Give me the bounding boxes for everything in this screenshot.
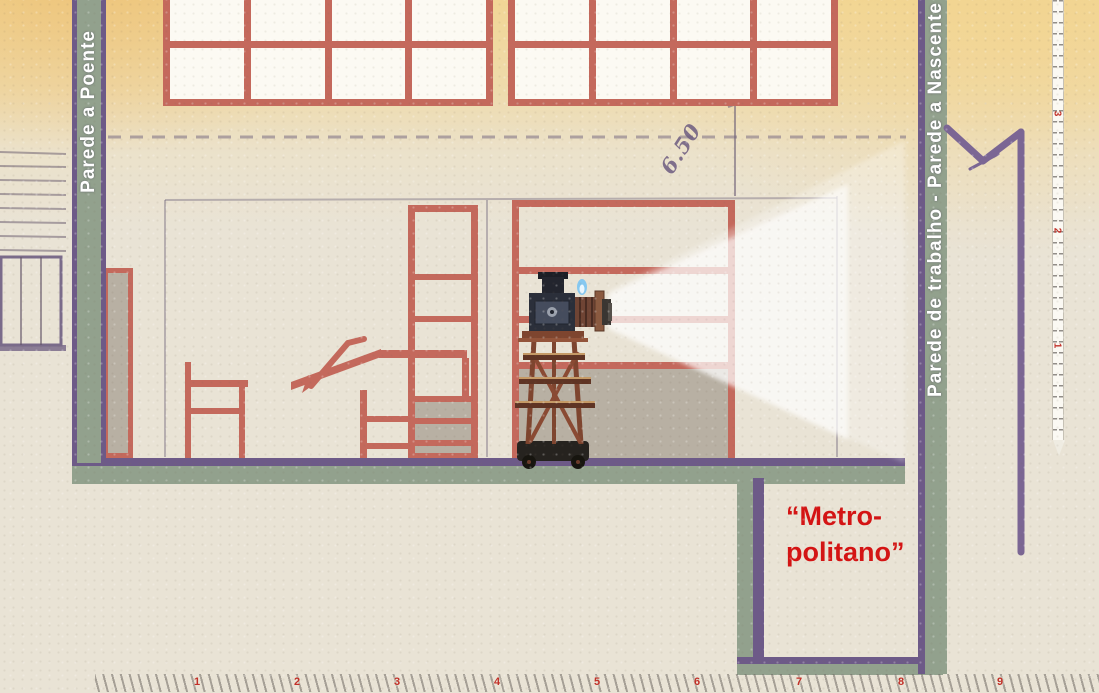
- ruler-number: 9: [997, 676, 1003, 688]
- metropolitano-line2: politano”: [786, 534, 956, 570]
- ruler-number: 1: [1051, 343, 1062, 349]
- drafting-table-top: [291, 349, 467, 393]
- ruler-number: 2: [1051, 228, 1062, 234]
- chimney: [542, 277, 564, 295]
- ruler-ticks: [1059, 0, 1063, 440]
- projector-platform: [522, 331, 584, 338]
- ruler-number: 7: [796, 676, 802, 688]
- bellows-and-lens: [575, 291, 612, 331]
- ruler-number: 3: [394, 676, 400, 688]
- ruler-tip: [1053, 440, 1065, 456]
- metropolitano-line1: “Metro-: [786, 498, 956, 534]
- magic-lantern-projector: [515, 272, 612, 469]
- ruler-number: 6: [694, 676, 700, 688]
- ruler-number: 2: [294, 676, 300, 688]
- ruler-number: 8: [898, 676, 904, 688]
- vertical-scale-ruler: 3 2 1: [1052, 0, 1064, 440]
- ruler-number: 4: [494, 676, 500, 688]
- metropolitano-label: “Metro- politano”: [786, 498, 956, 571]
- architectural-section-diagram: Parede a Poente Parede de trabalho - Par…: [0, 0, 1099, 693]
- ruler-number: 3: [1051, 111, 1062, 117]
- ruler-ticks: [1053, 0, 1057, 440]
- ruler-number: 5: [594, 676, 600, 688]
- ruler-number: 1: [194, 676, 200, 688]
- horizontal-scale-ruler: 1 2 3 4 5 6 7 8 9: [95, 674, 1099, 692]
- blue-flame-icon: [577, 279, 587, 295]
- projection-light-beam: [609, 140, 905, 463]
- wall-leader-line: [947, 128, 1021, 552]
- illustration-overlay: [0, 0, 1099, 693]
